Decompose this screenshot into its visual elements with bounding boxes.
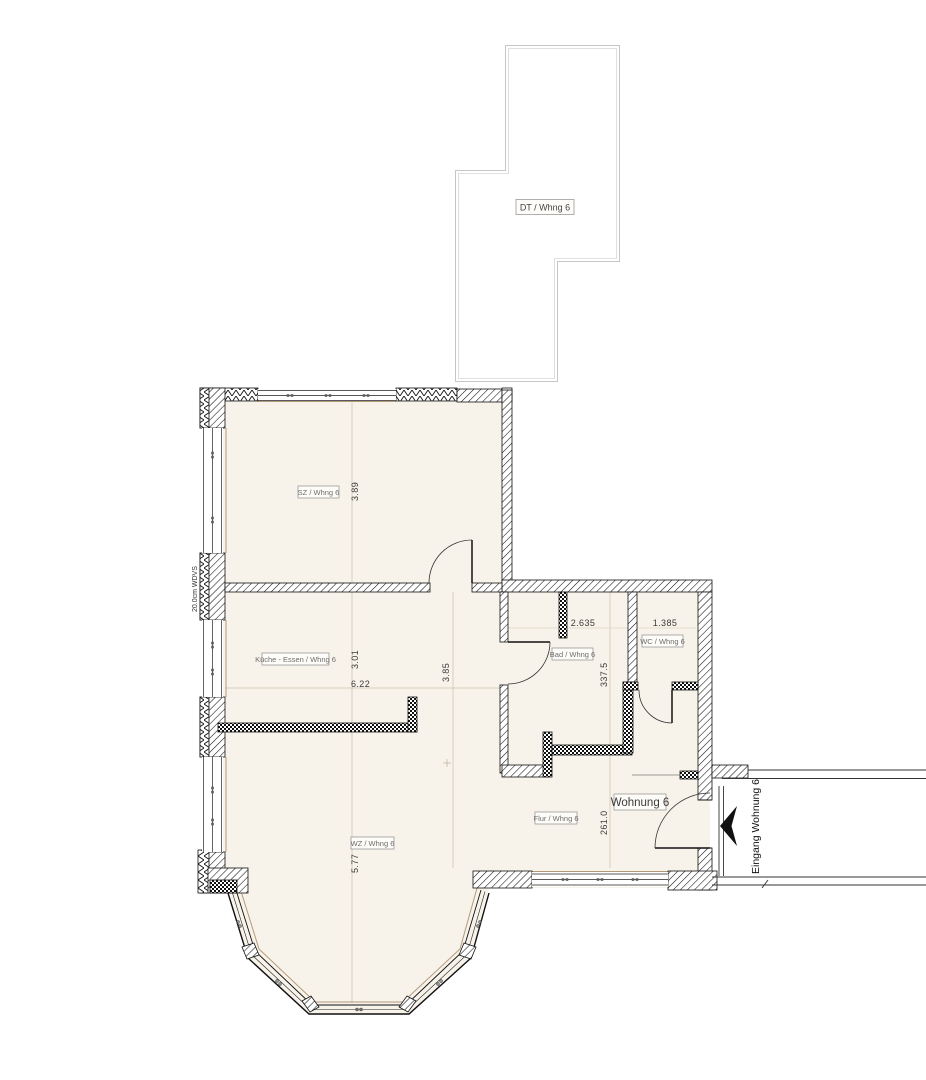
floor-plan-page: DT / Whng 6 bbox=[0, 0, 926, 1080]
wall-top-right bbox=[457, 389, 502, 402]
room-label-wz: WZ / Whng 6 bbox=[351, 839, 395, 848]
dim-flur-height: 261.0 bbox=[599, 810, 609, 835]
unit-label: Wohnung 6 bbox=[611, 797, 670, 809]
wall-rightblock-top bbox=[502, 580, 712, 592]
apartment-floor bbox=[203, 390, 710, 1014]
room-label-bad: Bad / Whng 6 bbox=[550, 650, 595, 659]
dim-kueche-depth: 3.01 bbox=[350, 650, 360, 669]
dim-bad-width: 2.635 bbox=[571, 618, 596, 628]
wall-kueche-counter bbox=[218, 723, 417, 732]
dim-wc-width: 1.385 bbox=[653, 618, 678, 628]
wall-right-upper bbox=[698, 592, 712, 800]
room-label-wc: WC / Whng 6 bbox=[640, 637, 685, 646]
dim-wz-width: 5.77 bbox=[350, 854, 360, 873]
wall-sz-kueche-left bbox=[225, 583, 430, 592]
floor-plan-svg: DT / Whng 6 bbox=[0, 0, 926, 1080]
entrance-arrow-icon bbox=[720, 806, 737, 846]
corridor-lines bbox=[712, 770, 926, 888]
dim-bad-height: 337.5 bbox=[599, 662, 609, 687]
terrace-outline: DT / Whng 6 bbox=[456, 46, 620, 382]
entrance-label: Eingang Wohnung 6 bbox=[750, 779, 762, 874]
wall-bad-left-lower bbox=[500, 685, 508, 773]
insulation-label: 20.0cm WDVS bbox=[192, 566, 199, 612]
wall-sz-right bbox=[502, 390, 512, 583]
dim-kueche-width: 6.22 bbox=[351, 679, 370, 689]
wall-bad-left-upper bbox=[500, 592, 508, 642]
wall-bad-wc-divider bbox=[628, 592, 637, 682]
room-label-sz: SZ / Whng 6 bbox=[298, 488, 340, 497]
wall-bad-stub bbox=[559, 592, 567, 638]
wall-top-insulation-right bbox=[396, 388, 457, 401]
room-label-kueche: Küche - Essen / Whng 6 bbox=[255, 655, 336, 664]
wall-sz-kueche-right bbox=[472, 583, 502, 592]
wall-corridor-stub bbox=[712, 765, 748, 778]
room-label-flur: Flur / Whng 6 bbox=[533, 814, 578, 823]
dim-sz-width: 3.89 bbox=[350, 482, 360, 501]
terrace-label: DT / Whng 6 bbox=[520, 203, 570, 213]
wall-bad-bottom bbox=[552, 745, 632, 755]
dim-kueche-inner: 3.85 bbox=[441, 663, 451, 682]
